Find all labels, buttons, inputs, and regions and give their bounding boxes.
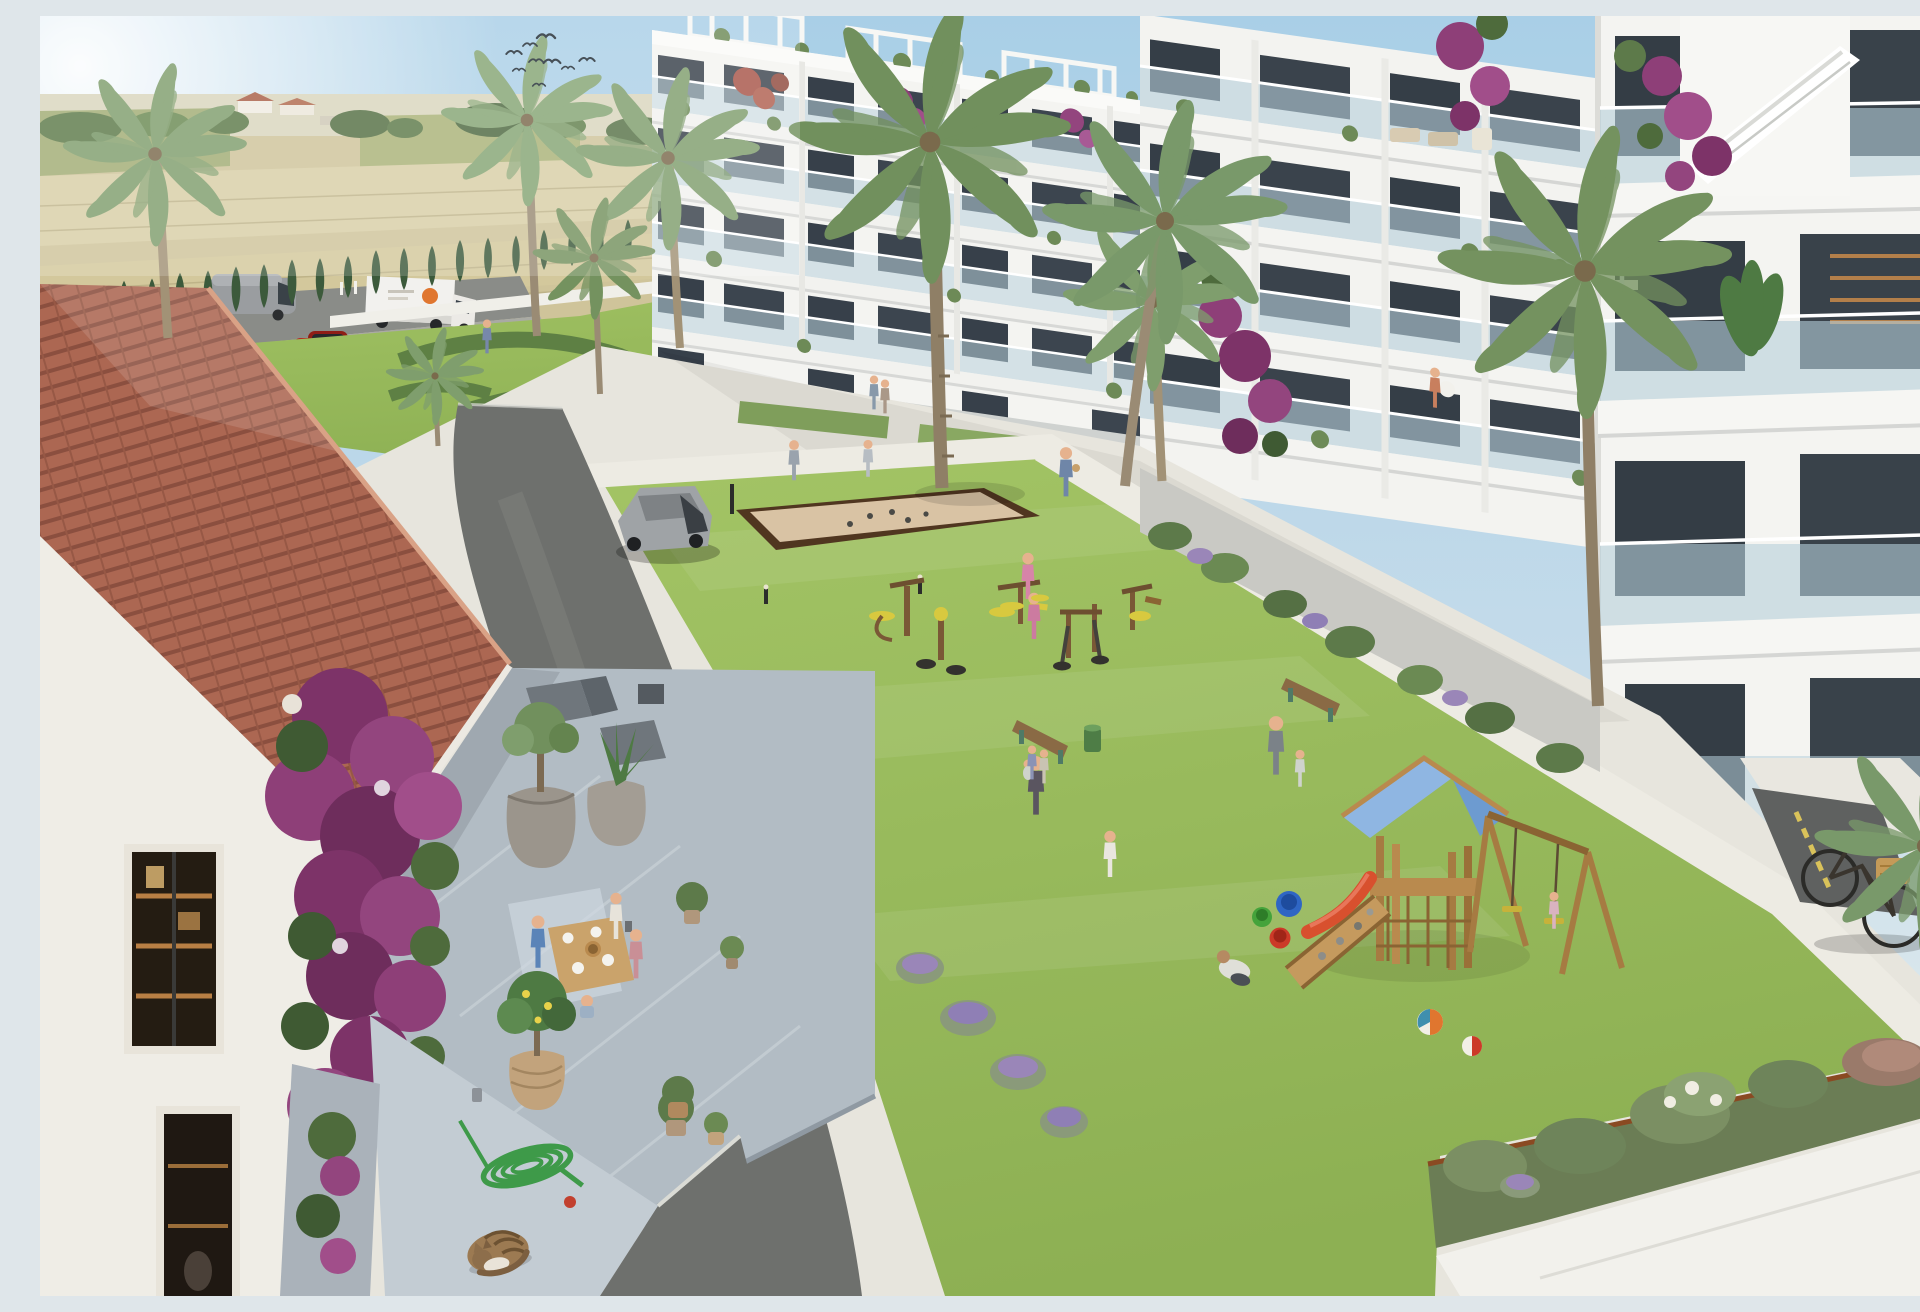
beach-ball-1 — [1417, 1009, 1443, 1035]
trash-bin — [1084, 725, 1101, 753]
beach-ball-2 — [1462, 1036, 1482, 1056]
house-window-2 — [156, 1106, 240, 1296]
render-canvas — [40, 16, 1920, 1296]
dining-table — [548, 916, 634, 994]
atmospheric-haze — [40, 16, 800, 276]
truck-logo — [422, 288, 438, 304]
wall-tap — [472, 1088, 482, 1102]
house-window-1 — [124, 844, 224, 1054]
hose-nozzle — [564, 1196, 576, 1208]
architectural-render: Aerial 3D architectural rendering of a m… — [40, 16, 1920, 1296]
